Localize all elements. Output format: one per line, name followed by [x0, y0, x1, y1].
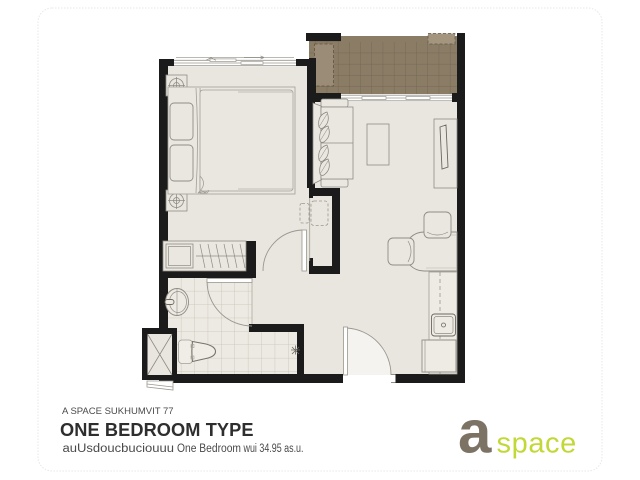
svg-text:One Bedroom: One Bedroom [177, 443, 241, 455]
svg-text:a: a [458, 399, 492, 466]
svg-text:ONE BEDROOM TYPE: ONE BEDROOM TYPE [60, 420, 254, 440]
svg-text:auUsdoucbuciouuu: auUsdoucbuciouuu [63, 443, 175, 455]
svg-text:wui 34.95 as.u.: wui 34.95 as.u. [243, 443, 304, 455]
svg-text:A SPACE SUKHUMVIT 77: A SPACE SUKHUMVIT 77 [62, 406, 174, 417]
svg-text:space: space [497, 428, 577, 460]
